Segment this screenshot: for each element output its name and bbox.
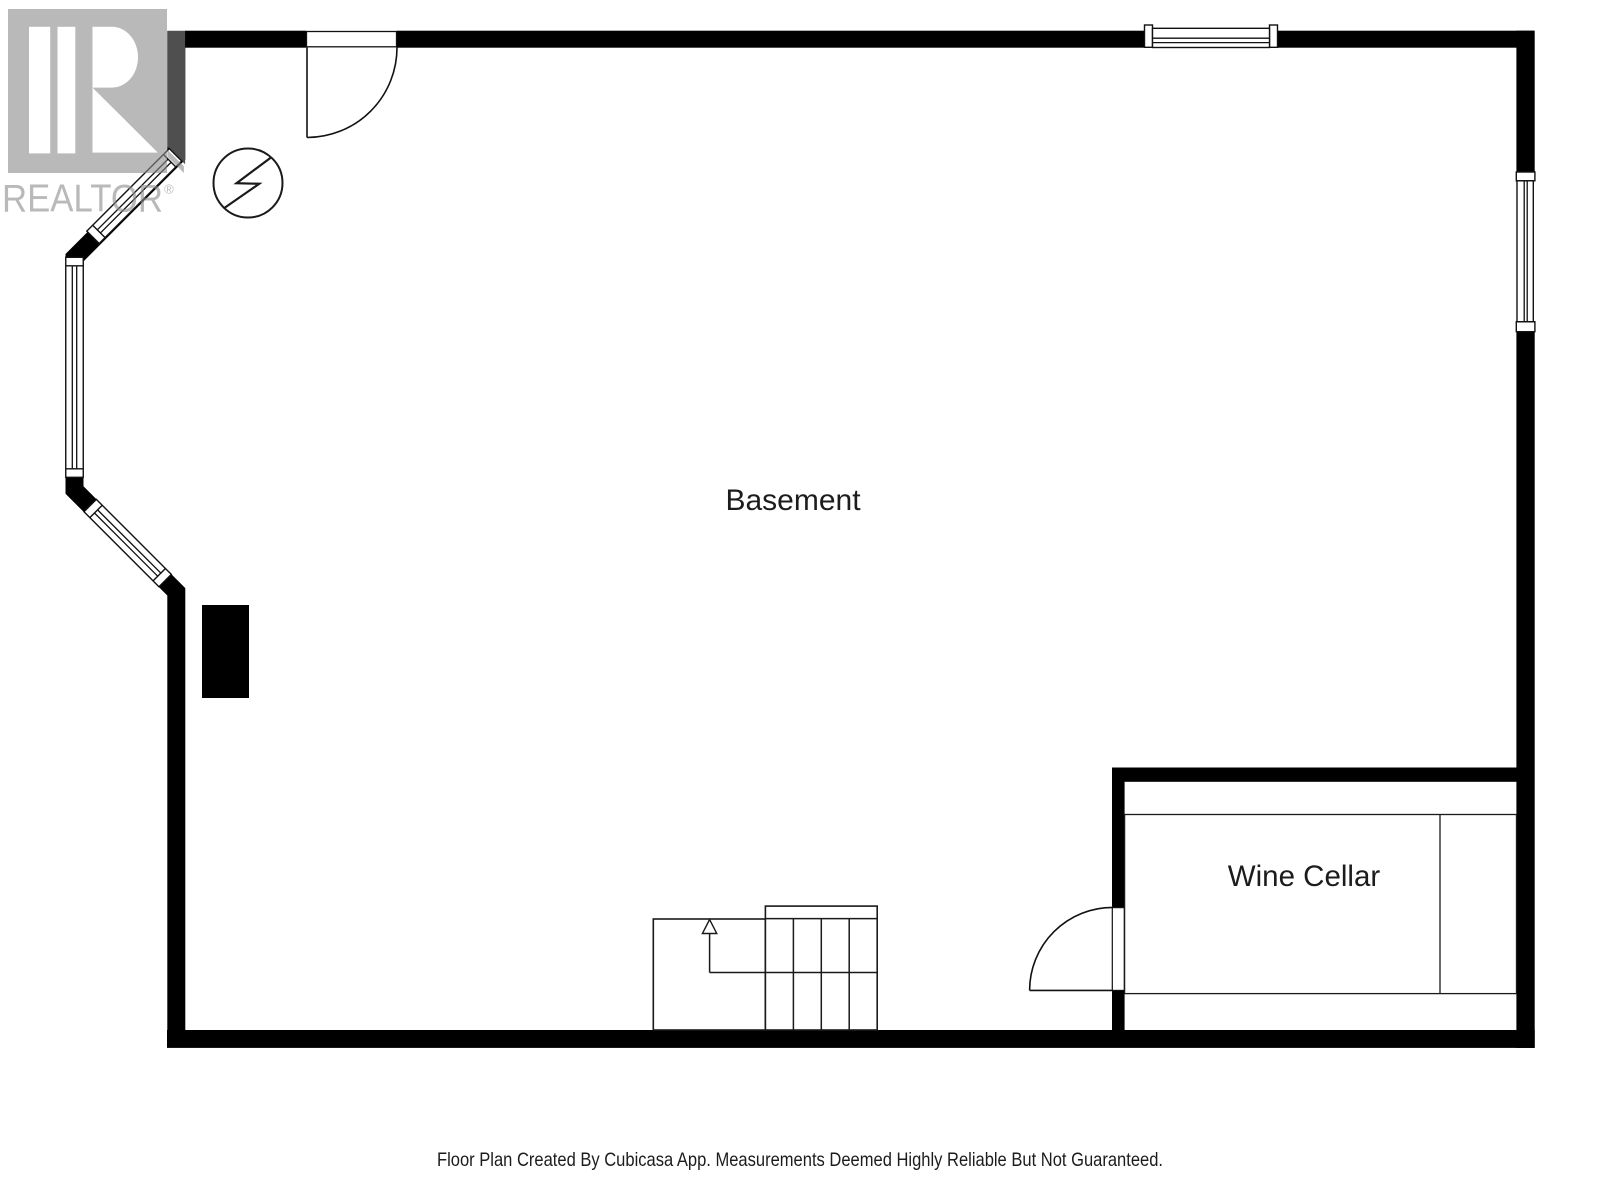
svg-text:®: ® xyxy=(164,182,174,197)
svg-text:Floor Plan Created By Cubicasa: Floor Plan Created By Cubicasa App. Meas… xyxy=(437,1149,1163,1171)
svg-text:Basement: Basement xyxy=(725,484,861,517)
svg-text:Wine Cellar: Wine Cellar xyxy=(1228,860,1381,893)
svg-text:REALTOR: REALTOR xyxy=(2,178,163,221)
